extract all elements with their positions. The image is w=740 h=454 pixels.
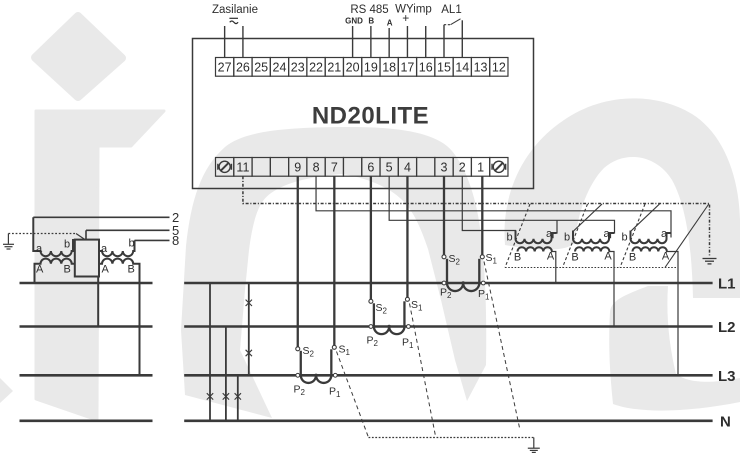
svg-text:a: a <box>661 228 668 240</box>
svg-text:b: b <box>129 238 135 250</box>
svg-text:14: 14 <box>455 61 469 75</box>
svg-text:S2: S2 <box>376 302 388 316</box>
svg-text:22: 22 <box>309 61 323 75</box>
svg-text:B: B <box>514 252 521 264</box>
svg-text:B: B <box>128 264 135 276</box>
svg-text:+: + <box>402 11 409 25</box>
svg-text:GND: GND <box>345 17 363 26</box>
svg-text:S1: S1 <box>339 344 351 358</box>
svg-text:A: A <box>547 251 555 263</box>
svg-text:5: 5 <box>386 161 393 175</box>
svg-text:27: 27 <box>218 61 232 75</box>
svg-text:21: 21 <box>327 61 341 75</box>
svg-text:18: 18 <box>382 61 396 75</box>
svg-text:A: A <box>36 264 44 276</box>
svg-text:8: 8 <box>313 161 320 175</box>
svg-text:P2: P2 <box>367 335 379 349</box>
svg-text:3: 3 <box>441 161 448 175</box>
svg-text:P2: P2 <box>294 384 306 398</box>
svg-text:B: B <box>368 17 374 26</box>
svg-text:2: 2 <box>459 161 466 175</box>
svg-text:7: 7 <box>331 161 338 175</box>
svg-text:A: A <box>604 251 612 263</box>
svg-text:b: b <box>506 231 512 243</box>
svg-text:WYimp: WYimp <box>395 4 432 16</box>
svg-text:N: N <box>720 413 731 430</box>
svg-text:23: 23 <box>291 61 305 75</box>
svg-text:4: 4 <box>404 161 411 175</box>
svg-text:AL1: AL1 <box>441 4 461 16</box>
svg-text:A: A <box>102 264 110 276</box>
svg-text:13: 13 <box>474 61 488 75</box>
svg-text:a: a <box>546 228 553 240</box>
svg-text:S1: S1 <box>411 299 423 313</box>
svg-text:P1: P1 <box>329 386 341 400</box>
svg-text:17: 17 <box>400 61 414 75</box>
svg-text:S1: S1 <box>486 252 498 266</box>
svg-text:25: 25 <box>254 61 268 75</box>
svg-text:a: a <box>101 243 108 255</box>
svg-text:8: 8 <box>172 233 179 248</box>
svg-text:B: B <box>64 264 71 276</box>
svg-text:26: 26 <box>236 61 250 75</box>
svg-text:B: B <box>571 252 578 264</box>
svg-text:16: 16 <box>419 61 433 75</box>
svg-text:15: 15 <box>437 61 451 75</box>
svg-text:11: 11 <box>236 161 249 175</box>
svg-text:L1: L1 <box>718 276 736 293</box>
svg-text:B: B <box>629 252 636 264</box>
svg-text:A: A <box>387 19 393 28</box>
svg-text:20: 20 <box>346 61 360 75</box>
svg-text:L2: L2 <box>718 319 736 336</box>
svg-text:L3: L3 <box>718 368 736 385</box>
svg-text:P1: P1 <box>402 337 414 351</box>
svg-text:ND20LITE: ND20LITE <box>312 103 429 130</box>
svg-text:a: a <box>36 243 43 255</box>
svg-text:6: 6 <box>367 161 374 175</box>
svg-text:9: 9 <box>294 161 301 175</box>
svg-text:1: 1 <box>477 161 484 175</box>
svg-text:24: 24 <box>273 61 287 75</box>
svg-text:b: b <box>64 239 70 251</box>
svg-text:RS 485: RS 485 <box>350 4 388 16</box>
svg-text:P1: P1 <box>478 288 490 302</box>
svg-text:A: A <box>662 251 670 263</box>
svg-text:b: b <box>621 231 627 243</box>
svg-text:12: 12 <box>492 61 506 75</box>
svg-text:19: 19 <box>364 61 378 75</box>
svg-text:S2: S2 <box>303 345 315 359</box>
svg-text:Zasilanie: Zasilanie <box>212 4 258 16</box>
svg-text:a: a <box>603 228 610 240</box>
svg-text:b: b <box>564 231 570 243</box>
